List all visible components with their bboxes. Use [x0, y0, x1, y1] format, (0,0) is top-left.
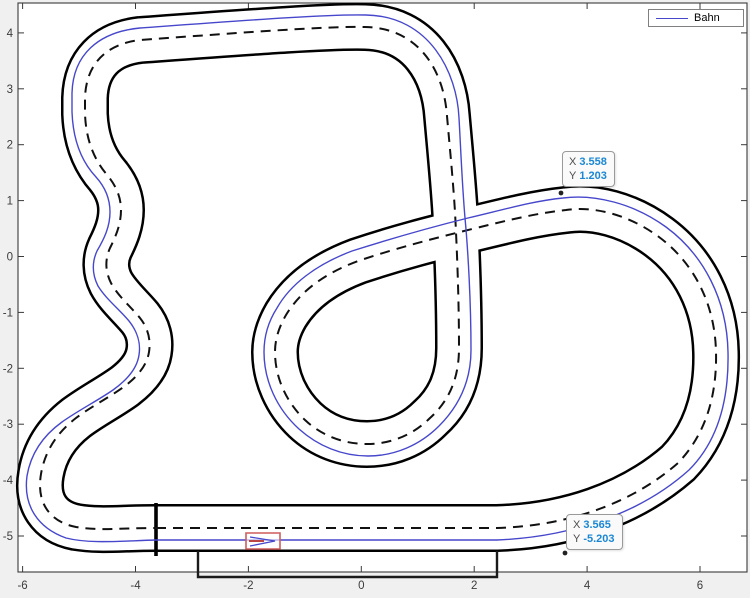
- matlab-figure: -6-4-20246 43210-1-2-3-4-5 Bahn X3.558 Y…: [0, 0, 750, 598]
- y-tick-label: -5: [3, 531, 13, 543]
- datatip-marker-dot[interactable]: [559, 191, 564, 196]
- legend-label: Bahn: [694, 12, 720, 24]
- datatip-1-x-row: X3.558: [569, 155, 607, 169]
- y-tick-label: 0: [7, 252, 13, 264]
- x-tick-label: -4: [130, 580, 141, 592]
- y-tick-label: 4: [7, 28, 14, 40]
- y-tick-label: 1: [7, 196, 13, 208]
- y-tick-label: -1: [3, 307, 13, 319]
- x-tick-label: 2: [471, 580, 477, 592]
- y-tick-label: -2: [3, 363, 13, 375]
- y-tick-label: -3: [3, 419, 13, 431]
- y-tick-label: -4: [3, 475, 14, 487]
- x-tick-label: -2: [243, 580, 253, 592]
- y-tick-label: 2: [7, 140, 13, 152]
- legend[interactable]: Bahn: [648, 9, 744, 27]
- x-tick-label: 6: [697, 580, 703, 592]
- datatip-2-x-row: X3.565: [573, 518, 615, 532]
- datatip-marker-dot[interactable]: [563, 551, 568, 556]
- x-tick-label: 4: [584, 580, 591, 592]
- datatip-1[interactable]: X3.558 Y1.203: [562, 151, 615, 187]
- datatip-1-y-row: Y1.203: [569, 169, 607, 183]
- x-tick-label: 0: [358, 580, 364, 592]
- x-tick-label: -6: [17, 580, 27, 592]
- legend-line-sample: [656, 18, 688, 19]
- y-tick-label: 3: [7, 84, 13, 96]
- datatip-2-y-row: Y-5.203: [573, 532, 615, 546]
- plot-canvas[interactable]: -6-4-20246 43210-1-2-3-4-5: [0, 0, 750, 598]
- datatip-2[interactable]: X3.565 Y-5.203: [566, 514, 623, 550]
